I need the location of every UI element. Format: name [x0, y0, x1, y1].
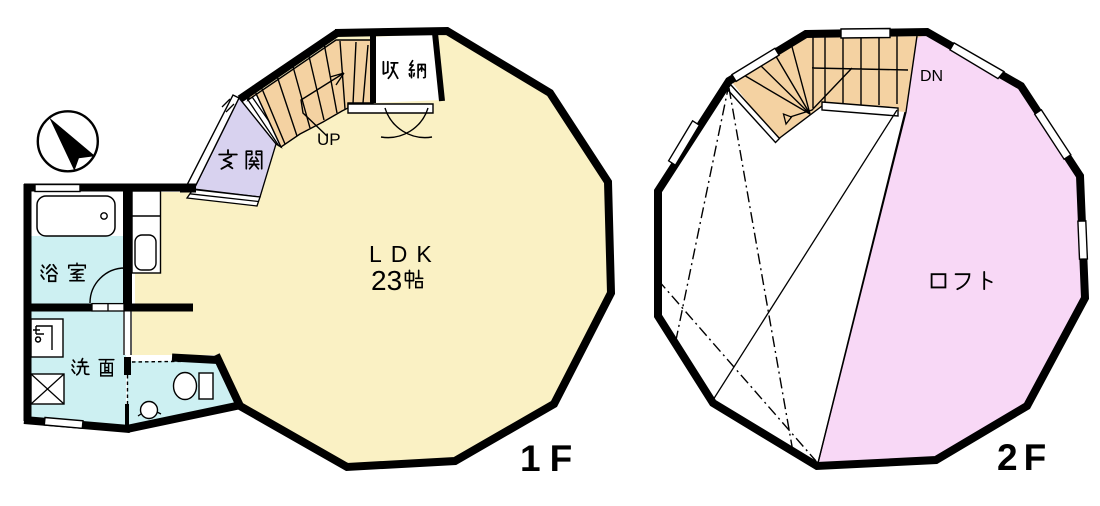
svg-text:23: 23	[371, 265, 402, 296]
svg-text:UP: UP	[317, 130, 341, 149]
svg-text:2F: 2F	[997, 437, 1052, 478]
svg-text:1F: 1F	[520, 438, 581, 479]
svg-text:LDK: LDK	[369, 241, 441, 267]
svg-text:DN: DN	[920, 68, 943, 85]
